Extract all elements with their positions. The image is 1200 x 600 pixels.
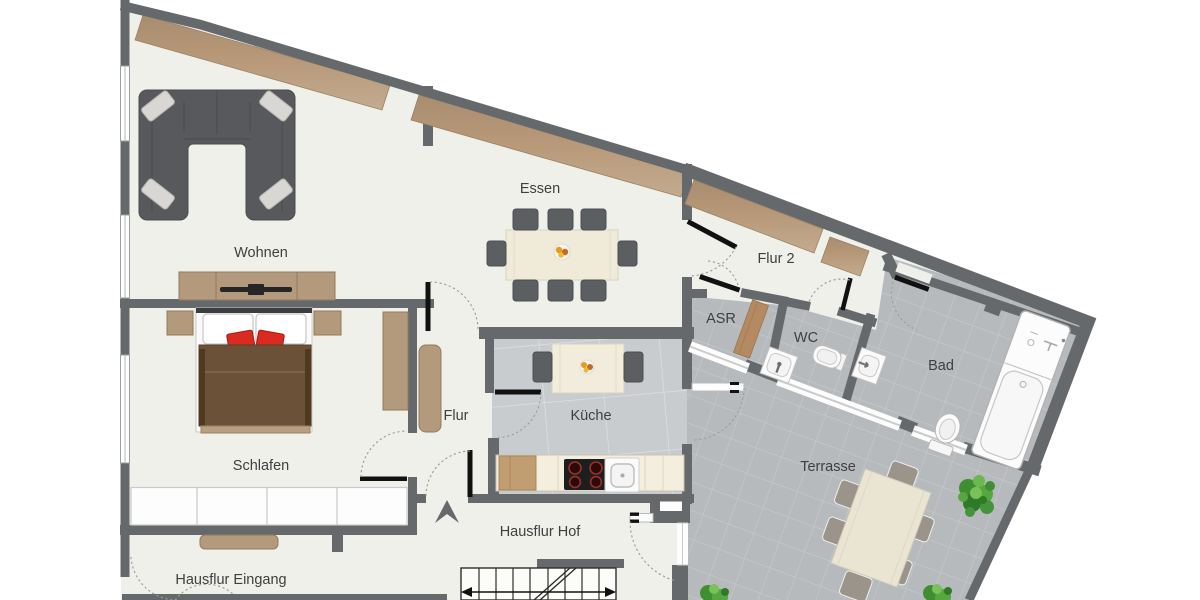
svg-text:Küche: Küche <box>570 408 611 424</box>
svg-text:Flur 2: Flur 2 <box>757 251 794 267</box>
svg-text:Terrasse: Terrasse <box>800 459 856 475</box>
svg-text:Hausflur Eingang: Hausflur Eingang <box>175 572 286 588</box>
svg-text:Hausflur Hof: Hausflur Hof <box>500 524 582 540</box>
svg-text:Essen: Essen <box>520 181 560 197</box>
svg-text:Wohnen: Wohnen <box>234 245 288 261</box>
svg-text:WC: WC <box>794 330 818 346</box>
svg-text:Schlafen: Schlafen <box>233 458 289 474</box>
svg-text:Flur: Flur <box>444 408 469 424</box>
svg-text:Bad: Bad <box>928 358 954 374</box>
svg-text:ASR: ASR <box>706 311 736 327</box>
